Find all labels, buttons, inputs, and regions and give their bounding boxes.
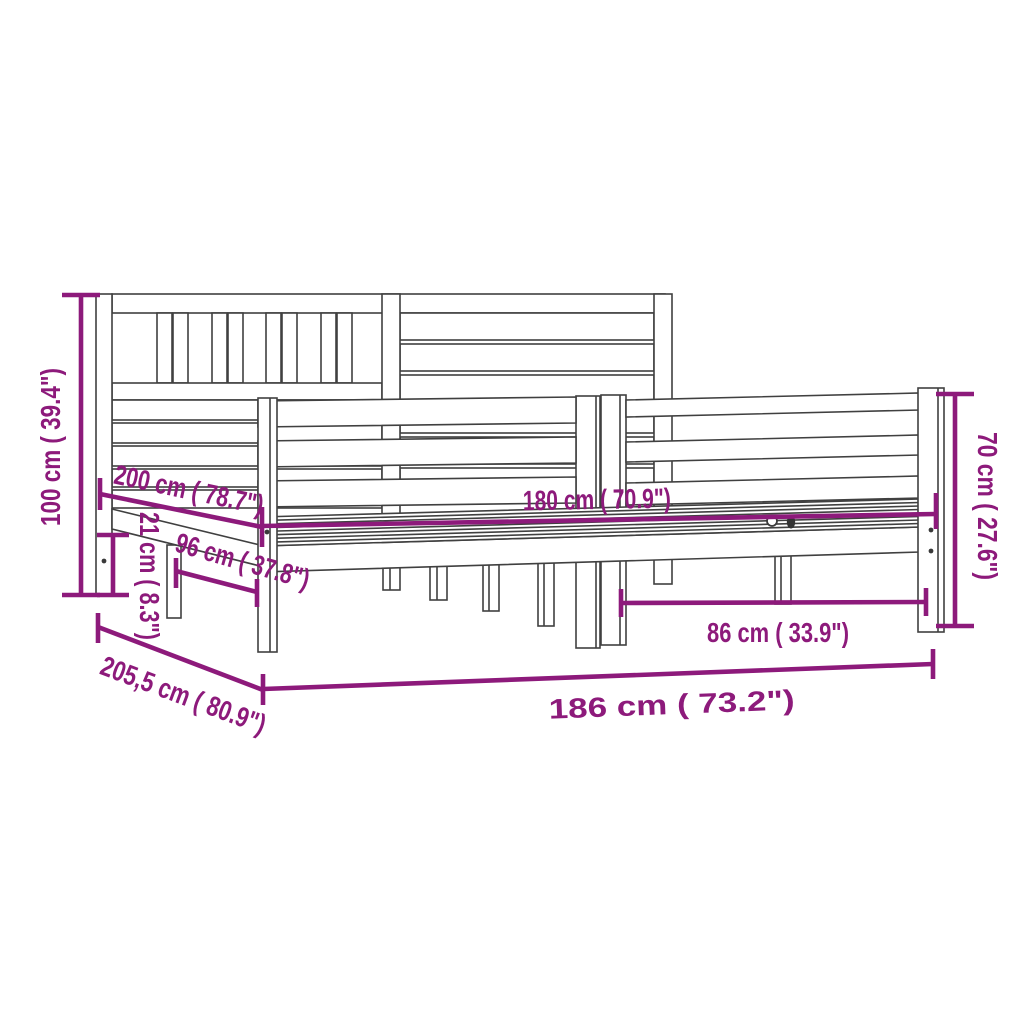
bed-frame-diagram: 100 cm ( 39.4") 200 cm ( 78.7") 180 cm (…	[0, 0, 1024, 1024]
dim-leg-span: 86 cm ( 33.9")	[621, 588, 926, 648]
dim-label-mattress-width: 180 cm ( 70.9")	[523, 483, 672, 517]
dim-headboard-height: 100 cm ( 39.4")	[35, 295, 100, 595]
dim-label-base-height: 21 cm ( 8.3")	[134, 512, 165, 640]
headboard-slats	[157, 313, 352, 383]
dim-total-width: 186 cm ( 73.2")	[263, 649, 933, 725]
headboard-left-post	[96, 294, 112, 595]
dim-label-headboard-height: 100 cm ( 39.4")	[35, 368, 66, 526]
dim-label-footboard-height: 70 cm ( 27.6")	[972, 432, 1003, 580]
dim-total-length: 205,5 cm ( 80.9")	[96, 613, 270, 740]
dim-label-total-length: 205,5 cm ( 80.9")	[96, 650, 270, 740]
dim-footboard-height: 70 cm ( 27.6")	[936, 394, 1003, 626]
headboard-mid-rail	[112, 383, 382, 400]
footboard-right-post	[918, 388, 944, 632]
dim-label-total-width: 186 cm ( 73.2")	[548, 684, 795, 724]
dim-label-leg-span: 86 cm ( 33.9")	[707, 617, 849, 648]
